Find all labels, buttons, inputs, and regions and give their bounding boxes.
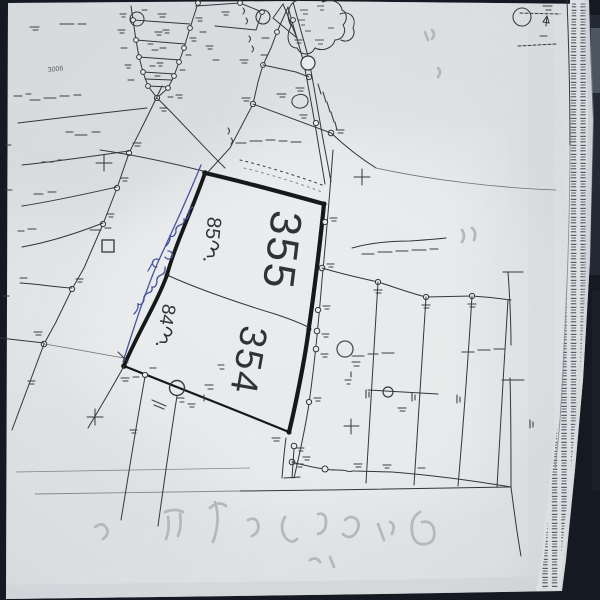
- svg-text:85: 85: [201, 216, 225, 240]
- svg-text:355: 355: [253, 208, 311, 293]
- svg-text:84: 84: [155, 302, 179, 327]
